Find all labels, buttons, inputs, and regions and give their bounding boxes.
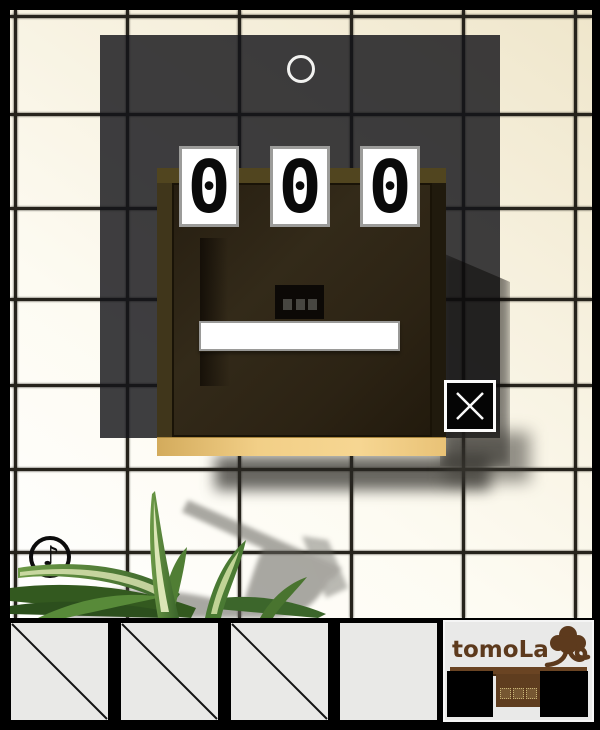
- logo-tile[interactable]: tomoLa: [443, 620, 594, 722]
- keypad-button[interactable]: [275, 285, 324, 319]
- safe-shading: [200, 238, 228, 334]
- inventory-slot-3[interactable]: [231, 623, 328, 720]
- logo-stamp-box: [496, 674, 541, 707]
- tree-swirl-icon: [543, 624, 591, 670]
- inventory-bar: tomoLa: [0, 618, 600, 730]
- dial-card-1[interactable]: 0: [179, 146, 239, 227]
- item-insert-slot[interactable]: [199, 321, 400, 351]
- empty-slot-diagonal: [11, 623, 108, 720]
- safe-frame-left: [157, 183, 172, 437]
- dial-digit: 0: [187, 151, 230, 223]
- inventory-slot-2[interactable]: [121, 623, 218, 720]
- empty-slot-diagonal: [121, 623, 218, 720]
- empty-slot-diagonal: [231, 623, 328, 720]
- cast-shadow-corner: [445, 432, 530, 482]
- dial-digit: 0: [368, 151, 411, 223]
- safe-shading: [200, 352, 230, 386]
- close-icon: [447, 383, 493, 429]
- logo-mask-right: [540, 671, 588, 717]
- inventory-slot-4[interactable]: [340, 623, 437, 720]
- logo-mask-left: [447, 671, 493, 717]
- inventory-slot-1[interactable]: [11, 623, 108, 720]
- tile-grid-line: [574, 10, 577, 618]
- dial-card-2[interactable]: 0: [270, 146, 330, 227]
- dial-card-3[interactable]: 0: [360, 146, 420, 227]
- tile-grid-line: [10, 15, 592, 18]
- plant-decoration: [10, 448, 355, 618]
- game-stage: 000 ♪: [0, 0, 600, 730]
- hanger-circle-icon: [287, 55, 315, 83]
- logo-wordmark: tomoLa: [452, 637, 549, 663]
- dial-digit: 0: [278, 151, 321, 223]
- tiled-wall: 000 ♪: [10, 10, 592, 618]
- close-button[interactable]: [444, 380, 496, 432]
